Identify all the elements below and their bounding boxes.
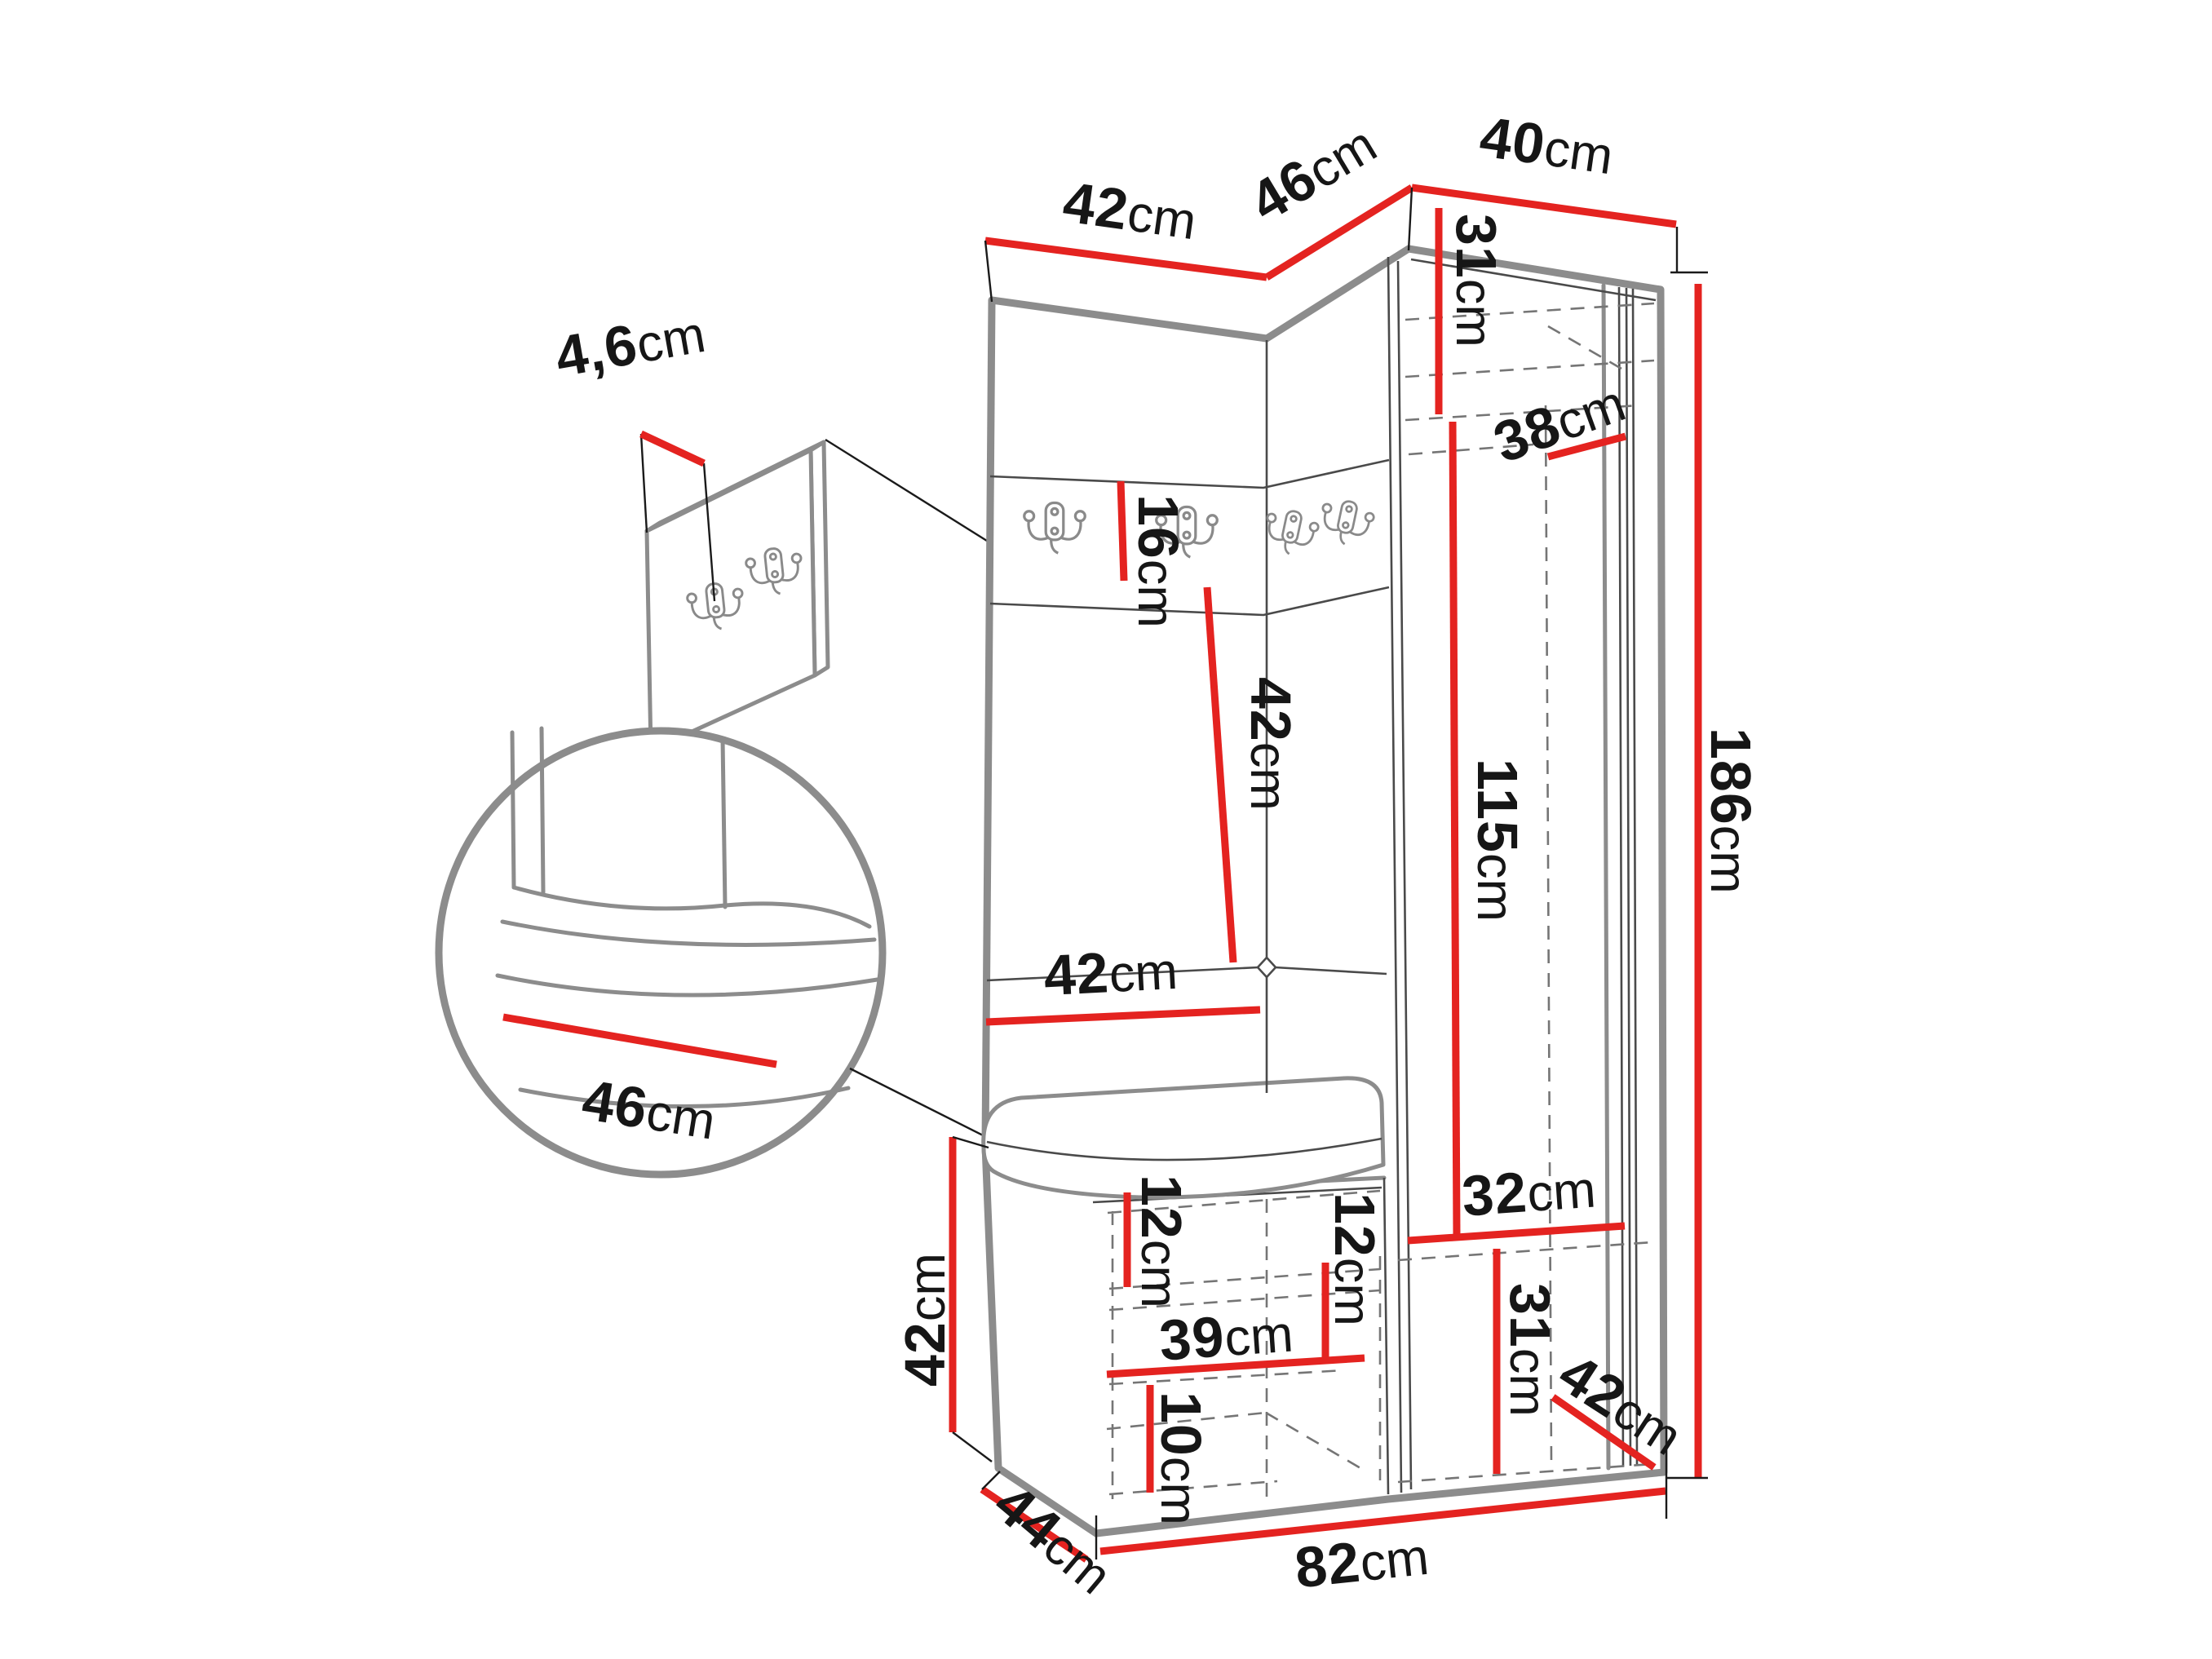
dim-top-left-width-line (985, 241, 1267, 277)
hook-panel-detail (641, 434, 1022, 750)
dim-cabinet-inner-height-label: 115cm (1466, 759, 1529, 922)
bench-seat-detail (439, 728, 999, 1175)
dim-unit: cm (1525, 1161, 1598, 1223)
dim-value: 115 (1466, 759, 1529, 853)
dim-value: 4,6 (551, 312, 642, 389)
dim-value: 82 (1292, 1530, 1364, 1600)
dim-value: 32 (1460, 1160, 1529, 1228)
dim-unit: cm (1150, 1457, 1207, 1525)
dim-unit: cm (1499, 1348, 1556, 1417)
dim-value: 16 (1126, 494, 1190, 560)
dim-value: 42 (1060, 170, 1133, 241)
dim-hook-rail-height-label: 16cm (1126, 494, 1190, 628)
dim-back-panel-height-label: 42cm (1239, 677, 1303, 811)
dim-unit: cm (1467, 853, 1524, 922)
dim-bench-shelf-width-label: 39cm (1157, 1299, 1295, 1372)
dim-unit: cm (1541, 119, 1617, 185)
dim-value: 39 (1157, 1304, 1227, 1372)
dim-top-right-width-label: 40cm (1476, 104, 1617, 186)
dim-unit: cm (1127, 560, 1184, 628)
dim-bench-lower-inner-label: 10cm (1149, 1391, 1213, 1525)
dim-unit: cm (1108, 943, 1179, 1003)
dim-unit: cm (1130, 1240, 1188, 1308)
dim-value: 186 (1699, 728, 1763, 825)
dim-value: 31 (1444, 214, 1508, 279)
dim-unit: cm (899, 1253, 956, 1321)
dim-bench-height-label: 42cm (893, 1253, 957, 1387)
dim-unit: cm (643, 1083, 719, 1150)
dim-cabinet-bottom-inner-width-label: 32cm (1460, 1155, 1598, 1228)
dim-unit: cm (632, 306, 710, 374)
dim-bench-upper-inner-label: 12cm (1130, 1175, 1193, 1308)
dim-unit: cm (1445, 279, 1502, 347)
dim-base-width-label: 82cm (1292, 1523, 1431, 1600)
dim-value: 10 (1149, 1391, 1213, 1457)
dim-cabinet-top-inner-height-label: 31cm (1444, 214, 1508, 347)
furniture-dimension-diagram: 42cm 46cm 40cm 4,6cm 16cm 42cm 42cm 31cm… (0, 0, 2212, 1659)
bench-detail-leader-line (850, 1068, 999, 1144)
dim-value: 42 (893, 1321, 957, 1387)
dim-total-height-label: 186cm (1699, 728, 1763, 894)
dim-hook-panel-thickness-label: 4,6cm (551, 300, 710, 389)
dim-value: 12 (1130, 1175, 1193, 1240)
dim-value: 42 (1042, 940, 1111, 1007)
dim-corner-shelf-inner-label: 12cm (1323, 1192, 1387, 1326)
dim-unit: cm (1223, 1305, 1295, 1367)
dim-cabinet-inner-height-line (1453, 422, 1457, 1237)
dim-unit: cm (1124, 184, 1200, 250)
dim-unit: cm (1240, 742, 1297, 811)
dim-value: 40 (1476, 104, 1550, 176)
hook-panel-front (647, 450, 815, 750)
dim-value: 12 (1323, 1192, 1387, 1258)
dim-hook-panel-thickness-line (641, 434, 704, 463)
dim-unit: cm (1324, 1258, 1381, 1326)
dim-value: 42 (1239, 677, 1303, 742)
dim-value: 31 (1498, 1283, 1562, 1348)
diagram-canvas: 42cm 46cm 40cm 4,6cm 16cm 42cm 42cm 31cm… (0, 0, 2212, 1659)
dim-hook-rail-height-line (1121, 481, 1124, 581)
dim-unit: cm (1357, 1528, 1431, 1592)
dim-unit: cm (1700, 825, 1757, 894)
dim-top-left-width-label: 42cm (1060, 170, 1201, 251)
dim-value: 46 (578, 1068, 653, 1141)
dim-back-panel-width-label: 42cm (1042, 937, 1179, 1007)
